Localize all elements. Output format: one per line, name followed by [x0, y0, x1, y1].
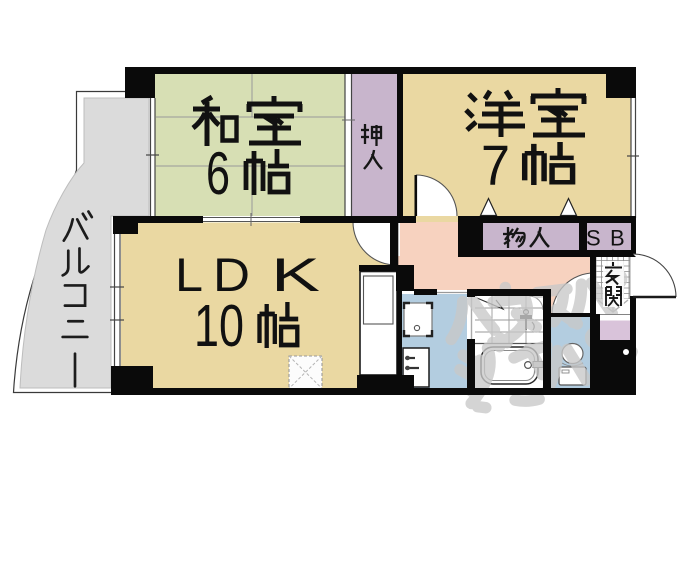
svg-text:S: S: [586, 226, 601, 251]
svg-text:B: B: [610, 226, 625, 251]
svg-text:K: K: [271, 248, 320, 301]
svg-text:10: 10: [194, 293, 244, 359]
svg-text:7: 7: [481, 134, 510, 198]
svg-text:6: 6: [206, 140, 230, 207]
